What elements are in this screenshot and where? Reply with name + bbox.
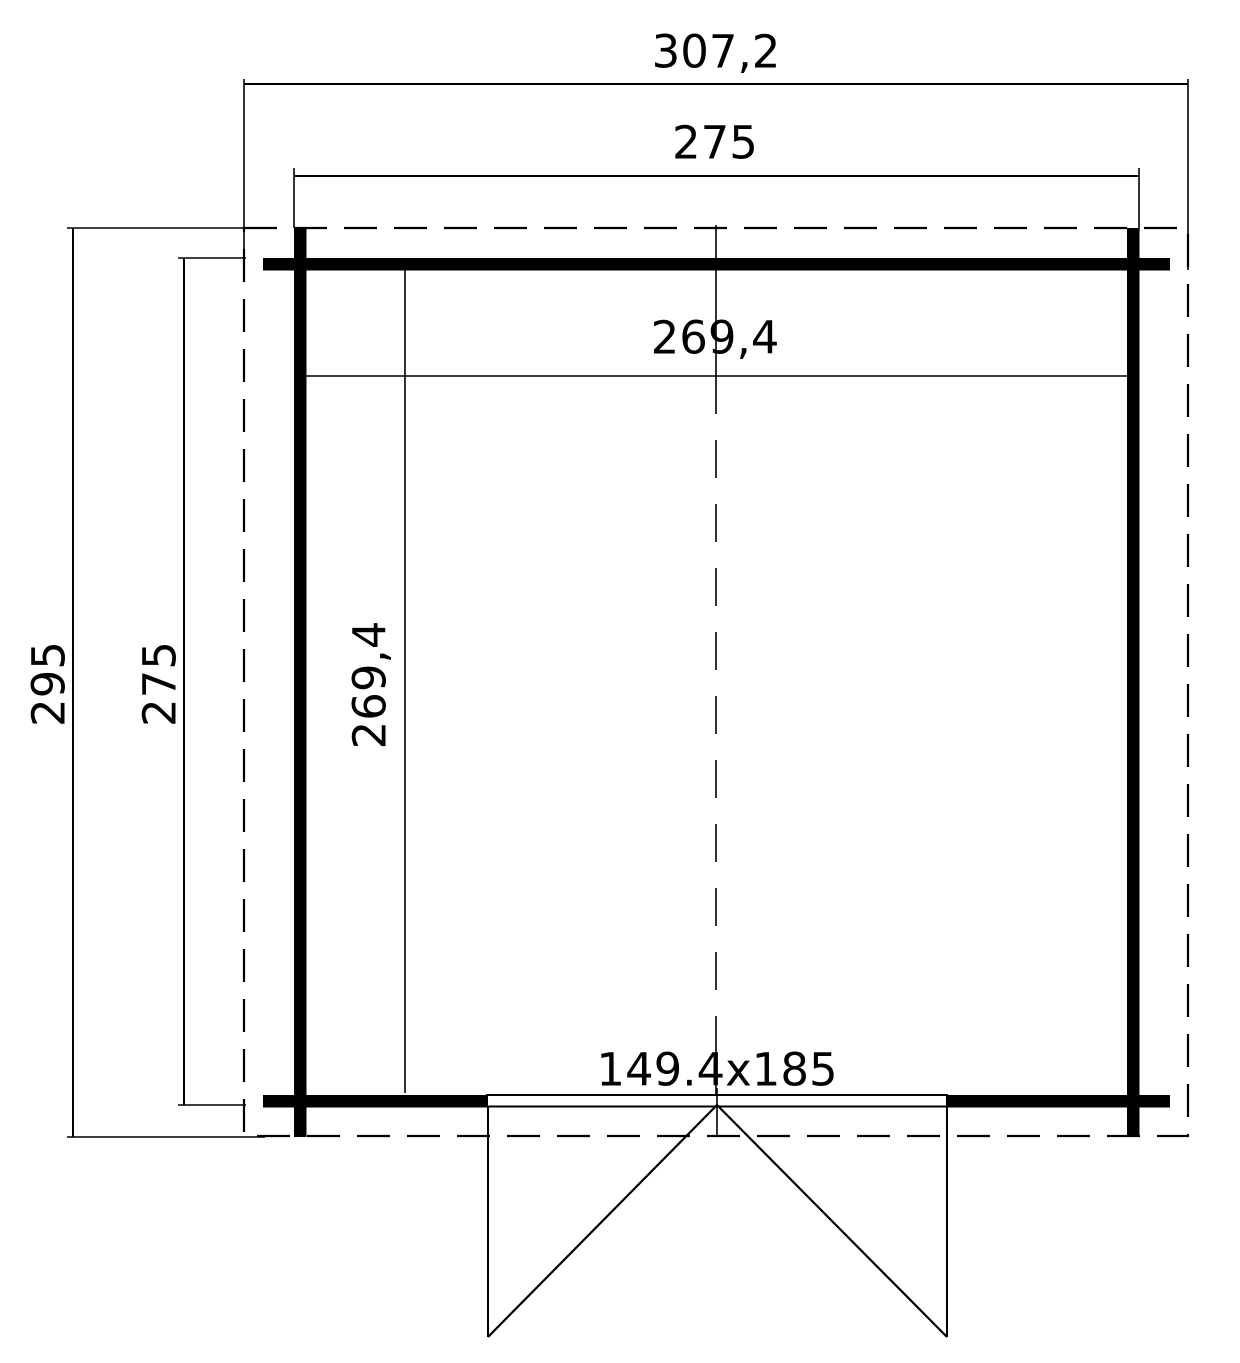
label-overall-width: 307,2 bbox=[652, 30, 781, 75]
label-interior-depth: 269,4 bbox=[348, 621, 393, 750]
label-door-size: 149.4x185 bbox=[596, 1048, 837, 1093]
door bbox=[487, 1088, 947, 1337]
floorplan-sheet: 307,2 275 295 275 269,4 269,4 149.4x185 bbox=[0, 0, 1240, 1363]
wall-left bbox=[294, 228, 307, 1137]
door-leaf-left-swing bbox=[488, 1105, 717, 1337]
label-interior-width: 269,4 bbox=[651, 316, 780, 361]
label-overall-depth: 295 bbox=[27, 641, 72, 727]
wall-right bbox=[1127, 228, 1140, 1137]
dim-outer-wall-width bbox=[294, 168, 1139, 230]
door-leaf-right-swing bbox=[717, 1105, 947, 1337]
label-outer-wall-depth: 275 bbox=[138, 641, 183, 727]
label-outer-wall-width: 275 bbox=[672, 121, 758, 166]
dim-outer-wall-depth bbox=[178, 258, 246, 1105]
wall-top bbox=[263, 258, 1170, 271]
